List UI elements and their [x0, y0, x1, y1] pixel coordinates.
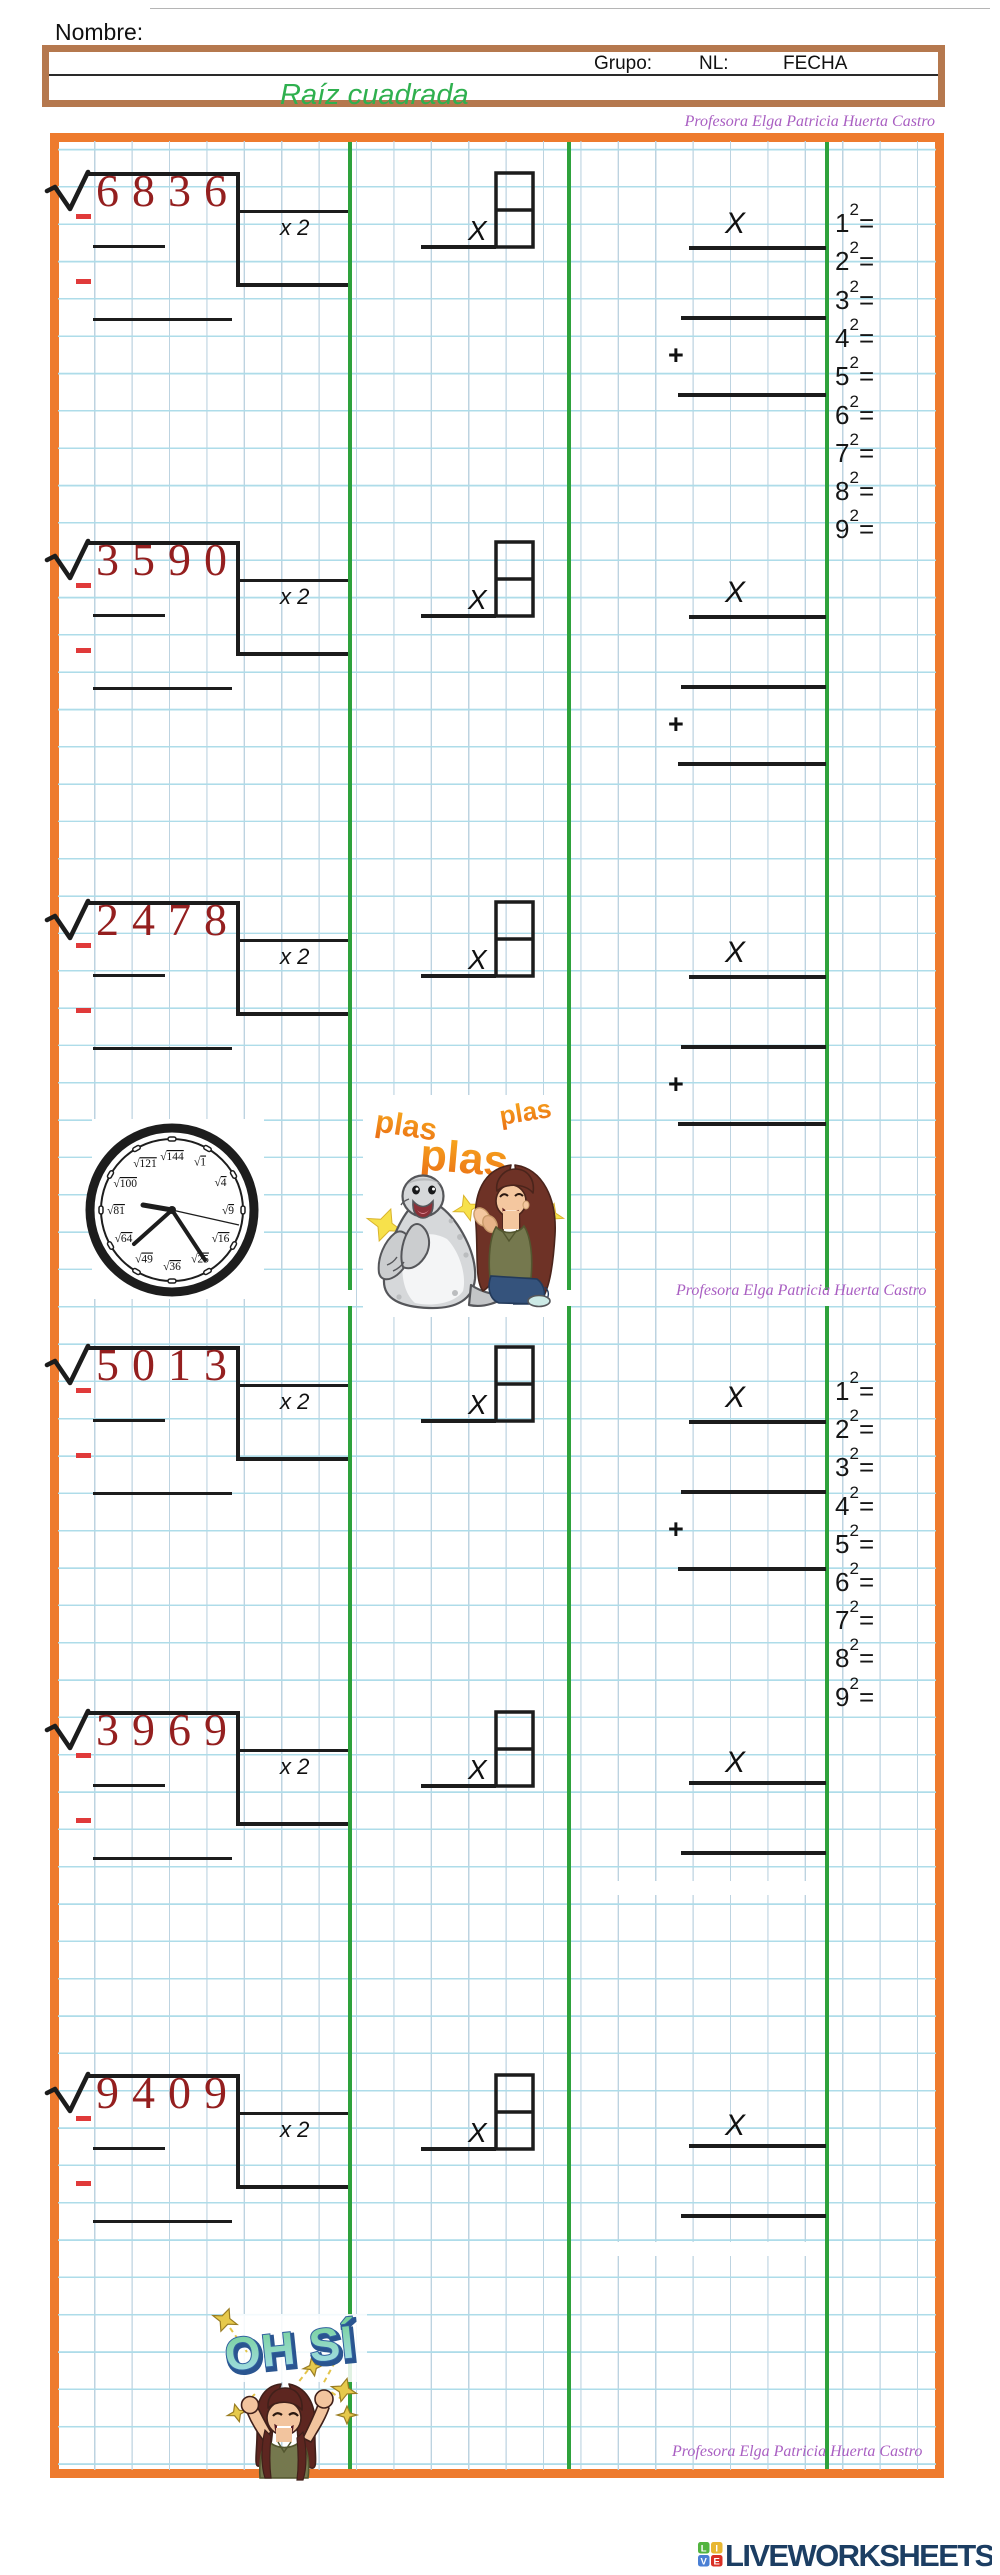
svg-text:√16: √16 [212, 1232, 230, 1245]
svg-text:√49: √49 [135, 1253, 153, 1266]
svg-text:√36: √36 [163, 1260, 181, 1273]
svg-text:√100: √100 [113, 1177, 137, 1190]
svg-text:√64: √64 [115, 1232, 133, 1245]
svg-text:√121: √121 [133, 1157, 157, 1170]
svg-text:L: L [701, 2544, 707, 2555]
svg-text:√81: √81 [107, 1204, 125, 1217]
svg-text:√144: √144 [160, 1150, 184, 1163]
svg-text:√1: √1 [194, 1156, 206, 1169]
svg-text:I: I [715, 2544, 718, 2555]
svg-text:LIVEWORKSHEETS: LIVEWORKSHEETS [725, 2538, 992, 2571]
svg-text:√4: √4 [214, 1176, 226, 1189]
svg-text:V: V [701, 2557, 708, 2568]
svg-text:√9: √9 [222, 1204, 234, 1217]
svg-text:E: E [714, 2557, 720, 2568]
